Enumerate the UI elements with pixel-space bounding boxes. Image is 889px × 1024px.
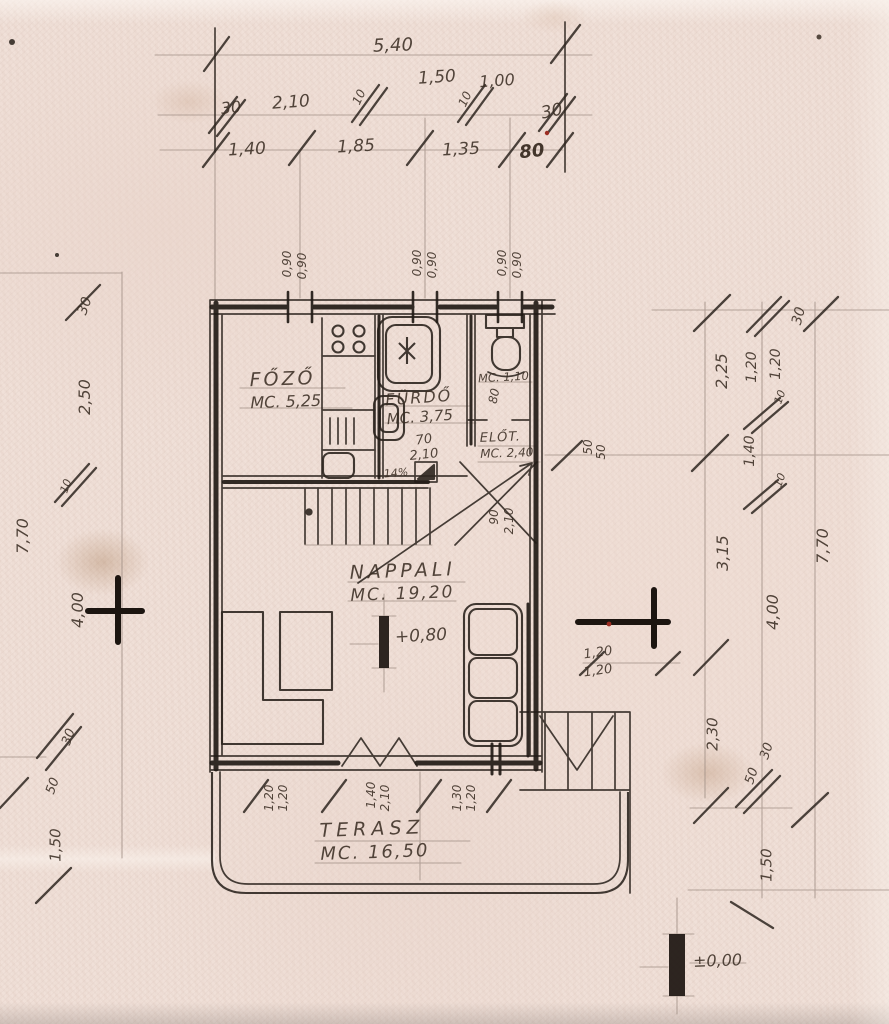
dimension-label: 2,10 [379, 785, 391, 812]
dimension-label: 1,50 [418, 68, 457, 88]
dimension-label: 1,20 [465, 785, 477, 812]
dimension-label: 5,40 [373, 36, 414, 55]
dimension-label: 2,30 [706, 717, 721, 750]
dimension-label: 70 [415, 432, 433, 447]
dimension-label: 1,40 [228, 141, 267, 160]
dimension-label: 1,20 [769, 348, 783, 379]
dimension-label: 1,30 [451, 785, 463, 812]
dimension-label: 2,50 [77, 379, 93, 415]
dimension-label: 50 [582, 439, 594, 454]
dimension-label: 90 [488, 509, 500, 524]
dimension-label: 2,10 [409, 447, 439, 463]
dimension-label: 30 [220, 99, 242, 117]
dimension-label: 14% [383, 466, 408, 479]
dimension-label: 0,90 [511, 252, 523, 279]
dimension-label: 0,90 [296, 253, 308, 280]
dimension-label: 7,70 [815, 528, 831, 564]
dimension-label: 0,90 [426, 252, 438, 279]
dimension-label: 2,25 [714, 353, 730, 389]
dimension-label: 10 [350, 88, 367, 107]
dimension-label: 30 [75, 295, 94, 317]
dimension-label: 3,15 [715, 535, 731, 571]
dimension-label: 4,00 [765, 594, 781, 630]
dimension-label: 30 [60, 727, 78, 747]
dimension-label: 1,40 [743, 435, 757, 466]
dimension-label: 2,10 [272, 93, 311, 113]
dimension-label: 1,00 [479, 72, 516, 90]
dimension-label: 80 [487, 387, 502, 404]
dimension-label: 1,20 [277, 785, 289, 812]
dimension-label: 1,35 [442, 141, 481, 160]
dimension-label: 4,00 [70, 592, 86, 628]
dimension-label: 30 [758, 741, 775, 761]
dimension-label: 10 [58, 478, 73, 495]
dimension-label: 10 [456, 90, 473, 109]
dimension-label: 7,70 [15, 518, 31, 554]
dimension-label: 50 [595, 444, 607, 459]
dimension-label: 50 [743, 766, 760, 786]
dimension-label: 1,85 [337, 138, 376, 157]
dimension-label: 1,20 [263, 785, 275, 812]
dimension-label: 10 [772, 472, 787, 489]
dimension-label: 1,20 [583, 645, 613, 662]
dimension-label: 50 [44, 776, 62, 796]
dimension-label: 0,90 [496, 250, 508, 277]
dimension-label: 1,50 [760, 848, 775, 881]
annotation-layer: 5,401,501,00302,101010301,401,851,35800,… [0, 0, 889, 1024]
dimension-label: 2,10 [503, 508, 515, 535]
dimension-label: 0,90 [281, 251, 293, 278]
dimension-label: 1,20 [583, 663, 613, 680]
dimension-label: 1,40 [365, 782, 377, 809]
dimension-label: 1,20 [745, 351, 759, 382]
dimension-label: 10 [772, 389, 787, 406]
dimension-label: 30 [790, 306, 808, 327]
dimension-label: 0,90 [411, 250, 423, 277]
scanned-floorplan-page: FŐZŐ MC. 5,25 FÜRDŐ MC. 3,75 MC. 1,10 EL… [0, 0, 889, 1024]
dimension-label: 1,50 [49, 828, 64, 861]
dimension-label: 30 [540, 101, 565, 122]
dimension-label: 80 [519, 142, 546, 163]
